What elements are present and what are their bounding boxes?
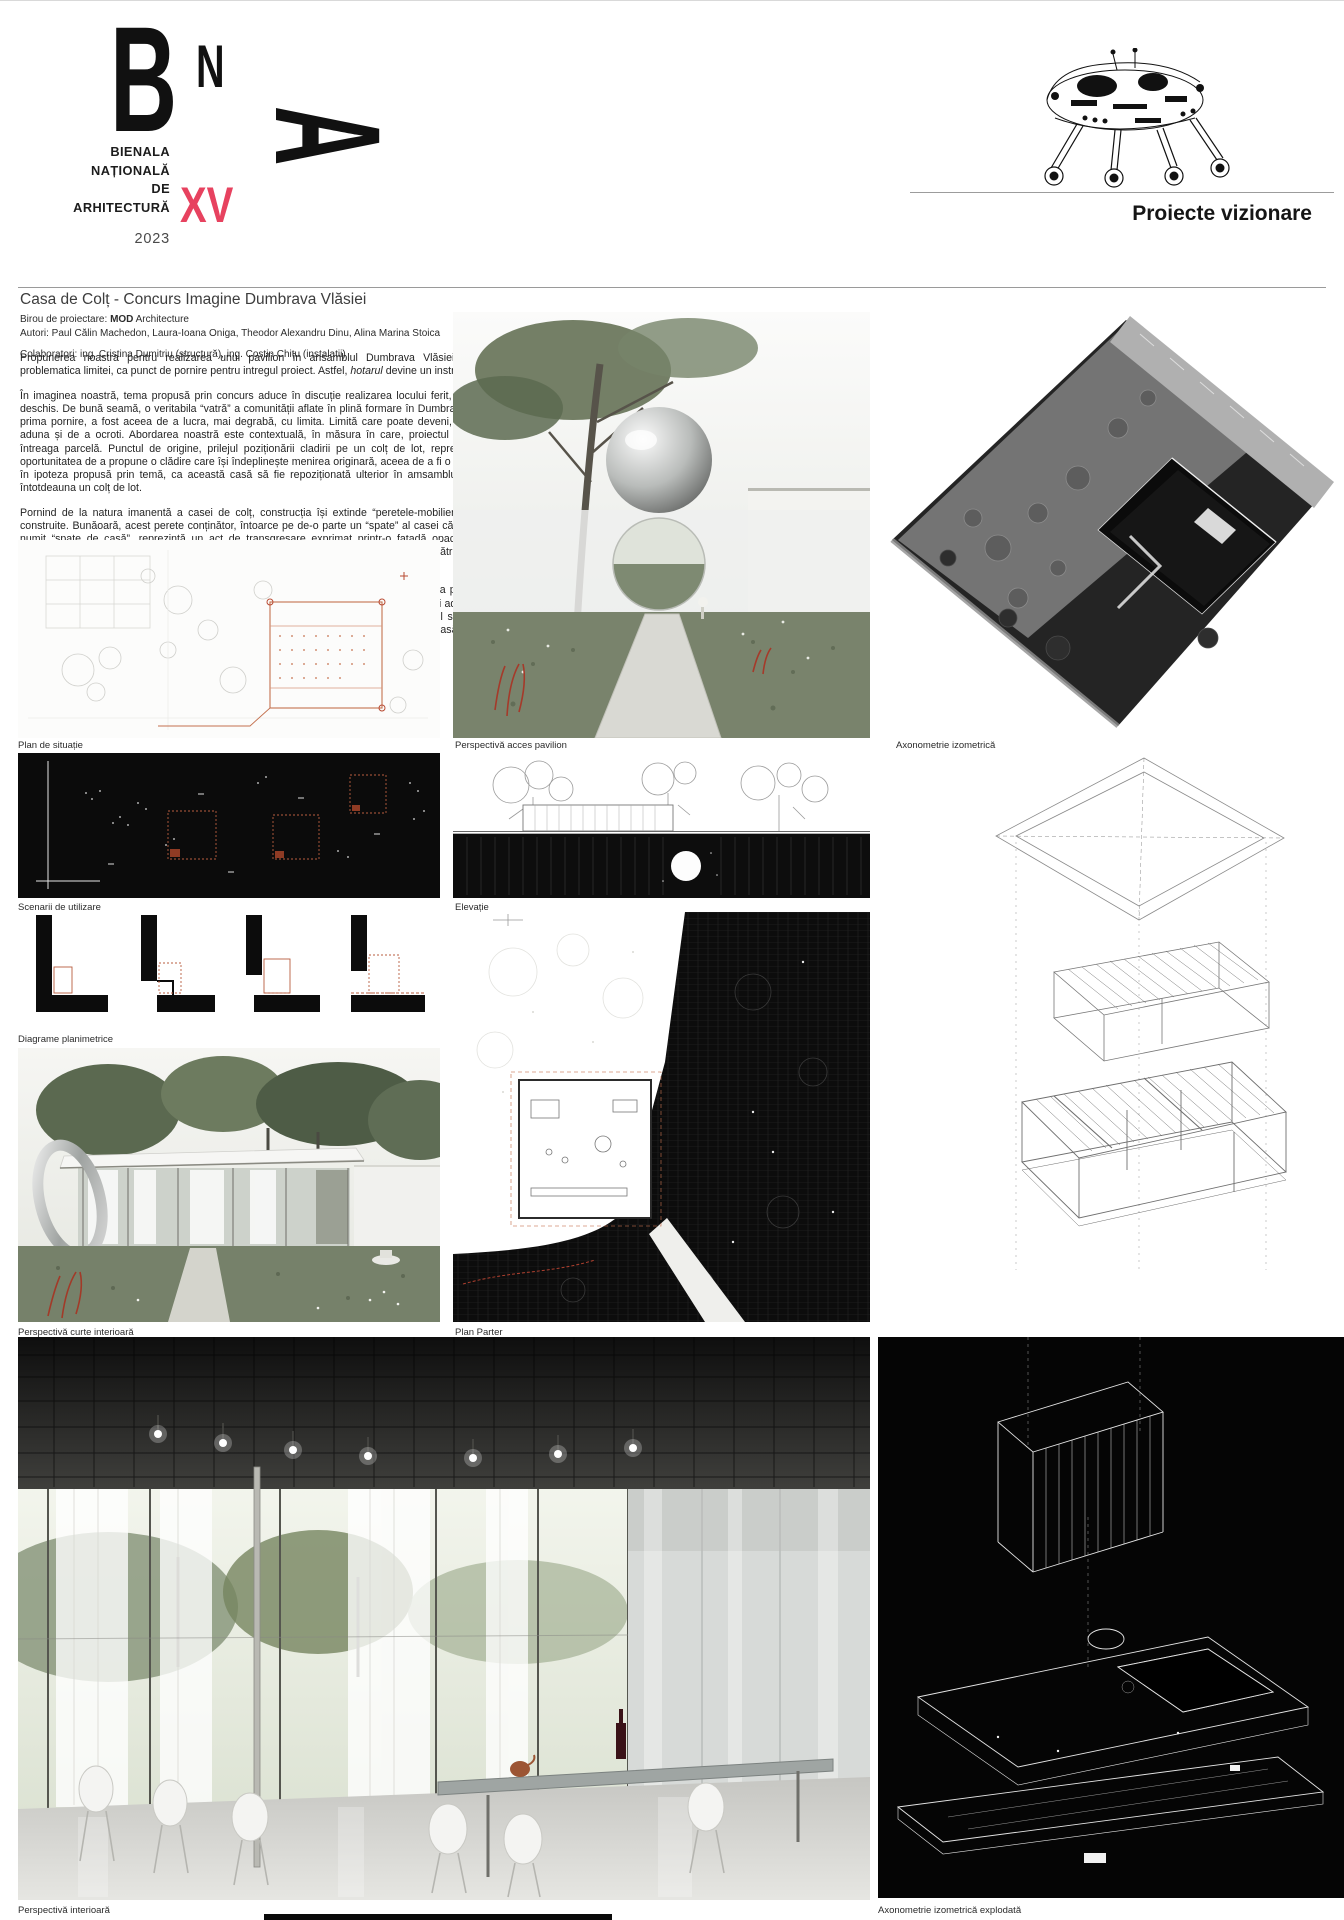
project-title: Casa de Colț - Concurs Imagine Dumbrava … bbox=[20, 291, 366, 309]
logo-word-line: BIENALA bbox=[73, 143, 170, 162]
exploded-axonometry-drawing bbox=[878, 1337, 1344, 1898]
logo-word-line: DE bbox=[73, 180, 170, 199]
logo-word-line: NAȚIONALĂ bbox=[73, 162, 170, 181]
edition-number: XV bbox=[180, 180, 233, 230]
ground-floor-plan-drawing bbox=[453, 912, 870, 1322]
caption-exploded-axonometry: Axonometrie izometrică explodată bbox=[878, 1905, 1021, 1916]
credits-office: Birou de proiectare: MOD Architecture bbox=[20, 313, 440, 327]
category-label: Proiecte vizionare bbox=[1000, 202, 1312, 226]
elevation-drawing bbox=[453, 753, 870, 898]
caption-site-plan: Plan de situație bbox=[18, 740, 83, 751]
title-rule bbox=[18, 287, 1326, 288]
planimetric-diagrams bbox=[18, 915, 440, 1030]
page-bottom-image-edge bbox=[264, 1914, 612, 1920]
usage-scenarios-drawing bbox=[18, 753, 440, 898]
logo-letter-b: B bbox=[110, 8, 177, 151]
page-edge bbox=[0, 0, 1344, 1]
logo-word-line: ARHITECTURĂ bbox=[73, 199, 170, 218]
caption-planimetric-diagrams: Diagrame planimetrice bbox=[18, 1034, 113, 1045]
logo-letter-n: N bbox=[196, 40, 225, 94]
edition-year: 2023 bbox=[135, 231, 170, 247]
caption-isometric-axonometry: Axonometrie izometrică bbox=[896, 740, 995, 751]
logo-wordmark: BIENALA NAȚIONALĂ DE ARHITECTURĂ bbox=[73, 143, 170, 217]
bna-logo: B N A BIENALA NAȚIONALĂ DE ARHITECTURĂ X… bbox=[92, 14, 307, 254]
caption-usage-scenarios: Scenarii de utilizare bbox=[18, 902, 101, 913]
site-plan-drawing bbox=[18, 540, 440, 738]
interior-perspective-photo bbox=[18, 1337, 870, 1900]
isometric-axonometry-drawing bbox=[878, 308, 1334, 738]
caption-access-perspective: Perspectivă acces pavilion bbox=[455, 740, 567, 751]
walking-machine-icon bbox=[985, 48, 1250, 194]
credits-authors: Autori: Paul Călin Machedon, Laura-Ioana… bbox=[20, 327, 440, 341]
logo-letter-a: A bbox=[270, 106, 382, 170]
pergola-axonometry-drawing bbox=[984, 750, 1294, 1296]
header-baseline bbox=[910, 192, 1334, 193]
access-perspective-photo bbox=[453, 312, 870, 738]
competition-board: B N A BIENALA NAȚIONALĂ DE ARHITECTURĂ X… bbox=[0, 0, 1344, 1920]
caption-interior-perspective: Perspectivă interioară bbox=[18, 1905, 110, 1916]
courtyard-perspective-photo bbox=[18, 1048, 440, 1322]
